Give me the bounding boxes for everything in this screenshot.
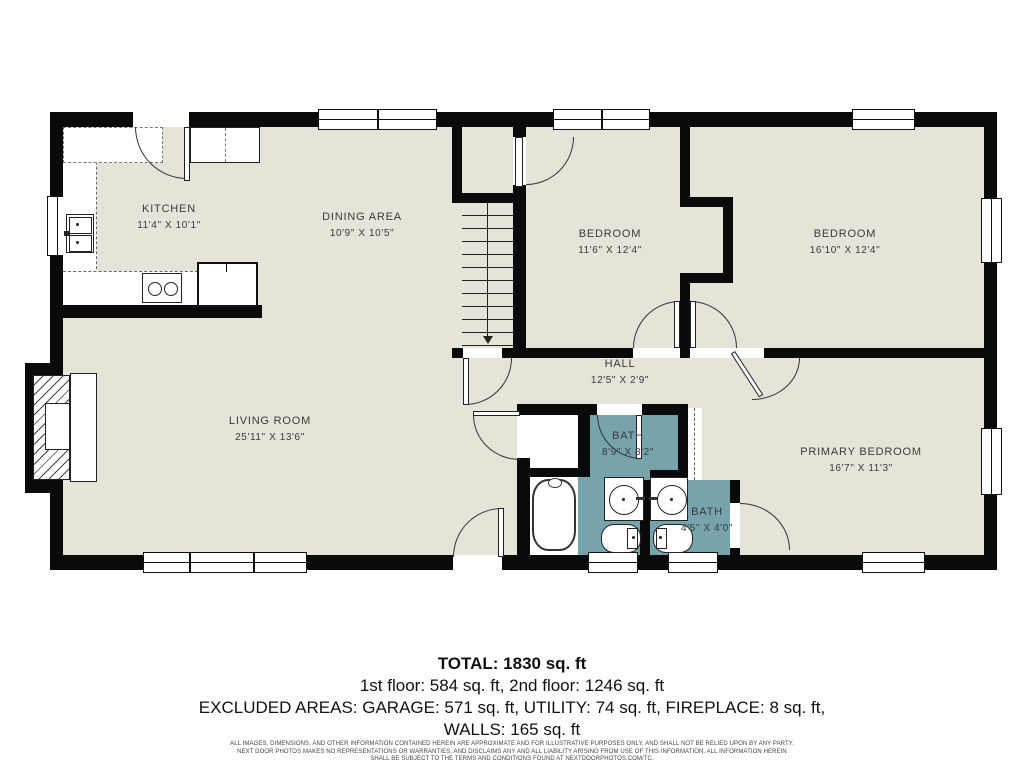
wall-bedroom-divider-bottom [680, 273, 690, 358]
wall-exterior-right [984, 112, 997, 570]
window-bath1-bottom [588, 552, 638, 573]
door-panel-living-exterior [498, 508, 504, 557]
kitchen-upper-cabinet-right [190, 127, 260, 163]
room-label-living: LIVING ROOM 25'11" X 13'6" [229, 412, 311, 446]
disclaimer-line1: ALL IMAGES, DIMENSIONS, AND OTHER INFORM… [0, 741, 1024, 749]
floor-plan-page: KITCHEN 11'4" X 10'1" DINING AREA 10'9" … [0, 0, 1024, 768]
staircase-down-arrow-icon [483, 336, 493, 344]
wall-closet-right [578, 404, 590, 477]
bath1-sink [604, 477, 644, 521]
door-panel-stair-hall [463, 358, 469, 405]
bathtub [532, 479, 576, 551]
bath1-toilet [601, 524, 641, 553]
cased-opening-dash [694, 408, 695, 480]
window-bedroom2-right [981, 198, 1002, 263]
disclaimer-line2: NEXT DOOR PHOTOS MAKES NO REPRESENTATION… [0, 749, 1024, 757]
staircase-direction-line [487, 203, 488, 336]
disclaimer: ALL IMAGES, DIMENSIONS, AND OTHER INFORM… [0, 741, 1024, 764]
window-bedroom1-top [553, 109, 650, 130]
room-label-primary-bedroom: PRIMARY BEDROOM 16'7" X 11'3" [800, 443, 922, 477]
room-label-kitchen: KITCHEN 11'4" X 10'1" [137, 200, 201, 234]
wall-exterior-left [50, 112, 63, 570]
wall-closet-bottom [517, 468, 590, 477]
fireplace-hearth [70, 373, 97, 482]
kitchen-refrigerator [197, 262, 258, 307]
window-bath2-bottom [668, 552, 718, 573]
kitchen-sink [66, 214, 94, 253]
room-label-bedroom1: BEDROOM 11'6" X 12'4" [578, 225, 642, 259]
kitchen-stove [142, 273, 182, 303]
door-panel-bedroom1-closet [515, 137, 523, 187]
door-panel-bedroom1 [674, 301, 680, 348]
door-panel-bedroom2 [690, 301, 696, 348]
window-living-bottom [143, 552, 307, 573]
floor-areas: 1st floor: 584 sq. ft, 2nd floor: 1246 s… [0, 675, 1024, 697]
primary-corridor-floor [702, 408, 740, 480]
walls-area: WALLS: 165 sq. ft [0, 719, 1024, 741]
cased-opening-bath-corridor [688, 408, 702, 480]
window-primary-bottom [862, 552, 925, 573]
wall-bath1-right [678, 404, 688, 480]
window-dining-top [318, 109, 437, 130]
disclaimer-line3: SHALL BE SUBJECT TO THE TERMS AND CONDIT… [0, 756, 1024, 764]
door-panel-closet [473, 411, 520, 416]
door-panel-kitchen-entry [184, 127, 190, 181]
wall-bedroom-divider-top [680, 125, 690, 205]
room-label-dining: DINING AREA 10'9" X 10'5" [322, 208, 402, 242]
window-bedroom2-top [852, 109, 915, 130]
door-opening-living-exterior [453, 555, 502, 570]
area-summary: TOTAL: 1830 sq. ft 1st floor: 584 sq. ft… [0, 653, 1024, 741]
room-label-bath1: BATH 8'9" X 8'2" [602, 427, 654, 461]
room-label-bath2: BATH 4'5" X 4'0" [681, 503, 733, 537]
fireplace-firebox [45, 403, 70, 450]
wall-stair-cap [452, 193, 515, 203]
door-opening-primary-hall [737, 348, 764, 358]
closet-floor [528, 410, 580, 470]
total-area: TOTAL: 1830 sq. ft [0, 653, 1024, 675]
excluded-areas: EXCLUDED AREAS: GARAGE: 571 sq. ft, UTIL… [0, 697, 1024, 719]
wall-bedroom-divider-mid [723, 197, 733, 283]
room-label-bedroom2: BEDROOM 16'10" X 12'4" [810, 225, 880, 259]
wall-stair-left [452, 125, 462, 203]
room-label-hall: HALL 12'5" X 2'9" [591, 355, 649, 389]
door-opening-kitchen-entry [133, 112, 189, 127]
door-opening-bath1 [597, 404, 642, 415]
window-primary-right [981, 428, 1002, 495]
